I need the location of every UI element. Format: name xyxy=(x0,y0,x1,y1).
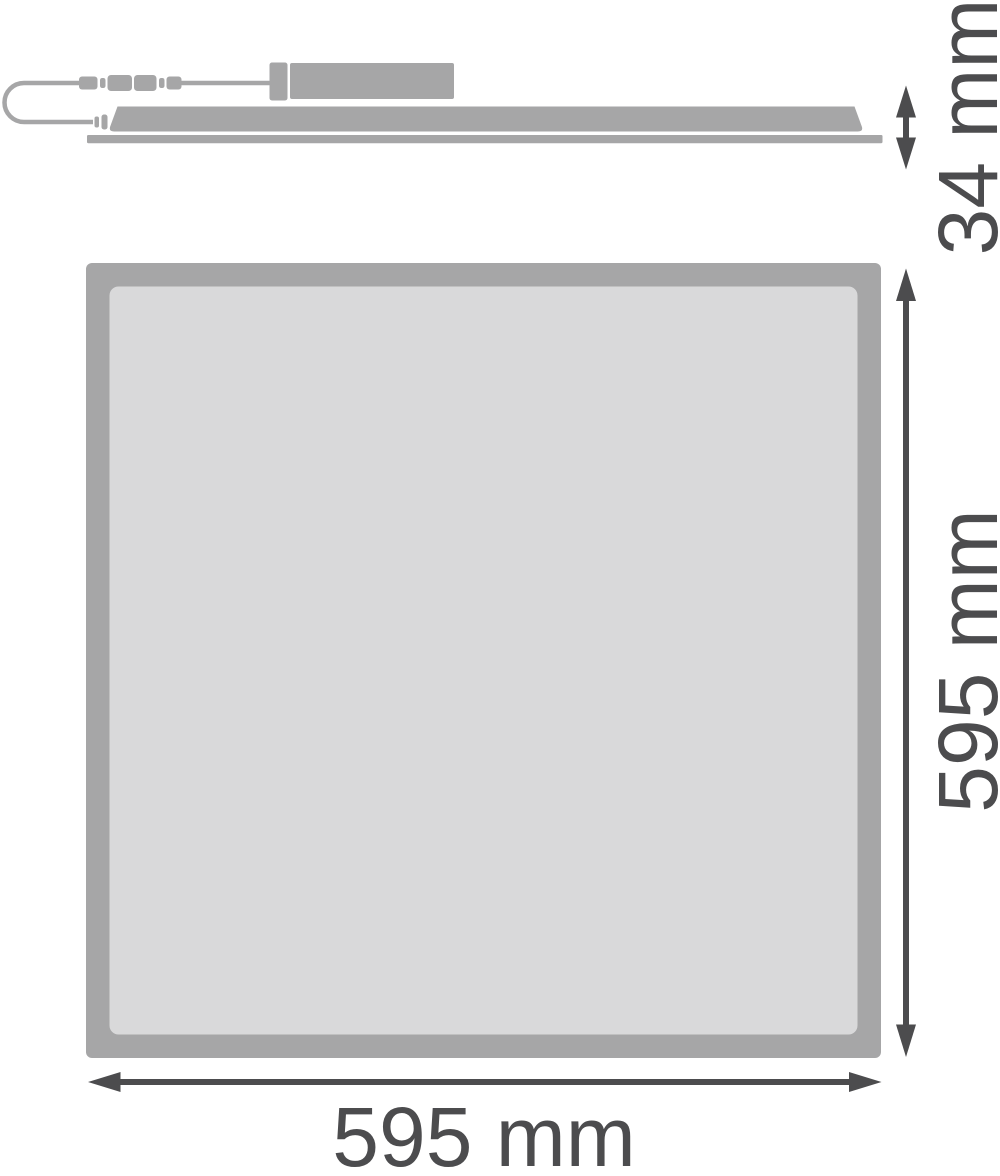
arrow-up-icon xyxy=(896,86,916,118)
driver-box xyxy=(270,63,455,101)
connector-segment xyxy=(79,77,98,90)
driver-end-cap xyxy=(270,63,288,101)
technical-drawing: 34 mm 595 mm 595 mm xyxy=(0,0,1000,1176)
panel-profile-plate xyxy=(87,135,883,143)
height-dimension-label: 34 mm xyxy=(921,0,1000,255)
connector-segment xyxy=(100,78,106,88)
panel-inlet-plug xyxy=(95,115,108,130)
arrow-left-icon xyxy=(88,1072,121,1092)
driver-body xyxy=(290,63,454,99)
plug-segment xyxy=(95,117,100,128)
panel-side-view: 34 mm xyxy=(5,0,1000,255)
panel-front-view: 595 mm 595 mm xyxy=(86,263,1000,1176)
connector-segment xyxy=(108,75,133,91)
vertical-dimension-label: 595 mm xyxy=(921,509,1000,812)
dimension-drawing-page: 34 mm 595 mm 595 mm xyxy=(0,0,1000,1176)
panel-profile-body xyxy=(110,107,862,132)
height-dimension-arrow xyxy=(896,86,916,170)
connector-segment xyxy=(167,77,182,90)
panel-front-surface xyxy=(110,287,858,1035)
arrow-down-icon xyxy=(896,138,916,170)
plug-segment xyxy=(102,115,108,130)
connector-segment xyxy=(134,75,157,91)
connector-segment xyxy=(159,78,165,88)
cable-connector-chain xyxy=(79,75,182,91)
arrow-down-icon xyxy=(896,1025,916,1058)
vertical-dimension-arrow xyxy=(896,269,916,1058)
horizontal-dimension-arrow xyxy=(88,1072,882,1092)
arrow-up-icon xyxy=(896,269,916,302)
power-cable-loop xyxy=(5,83,94,122)
horizontal-dimension-label: 595 mm xyxy=(332,1090,635,1176)
arrow-right-icon xyxy=(849,1072,882,1092)
